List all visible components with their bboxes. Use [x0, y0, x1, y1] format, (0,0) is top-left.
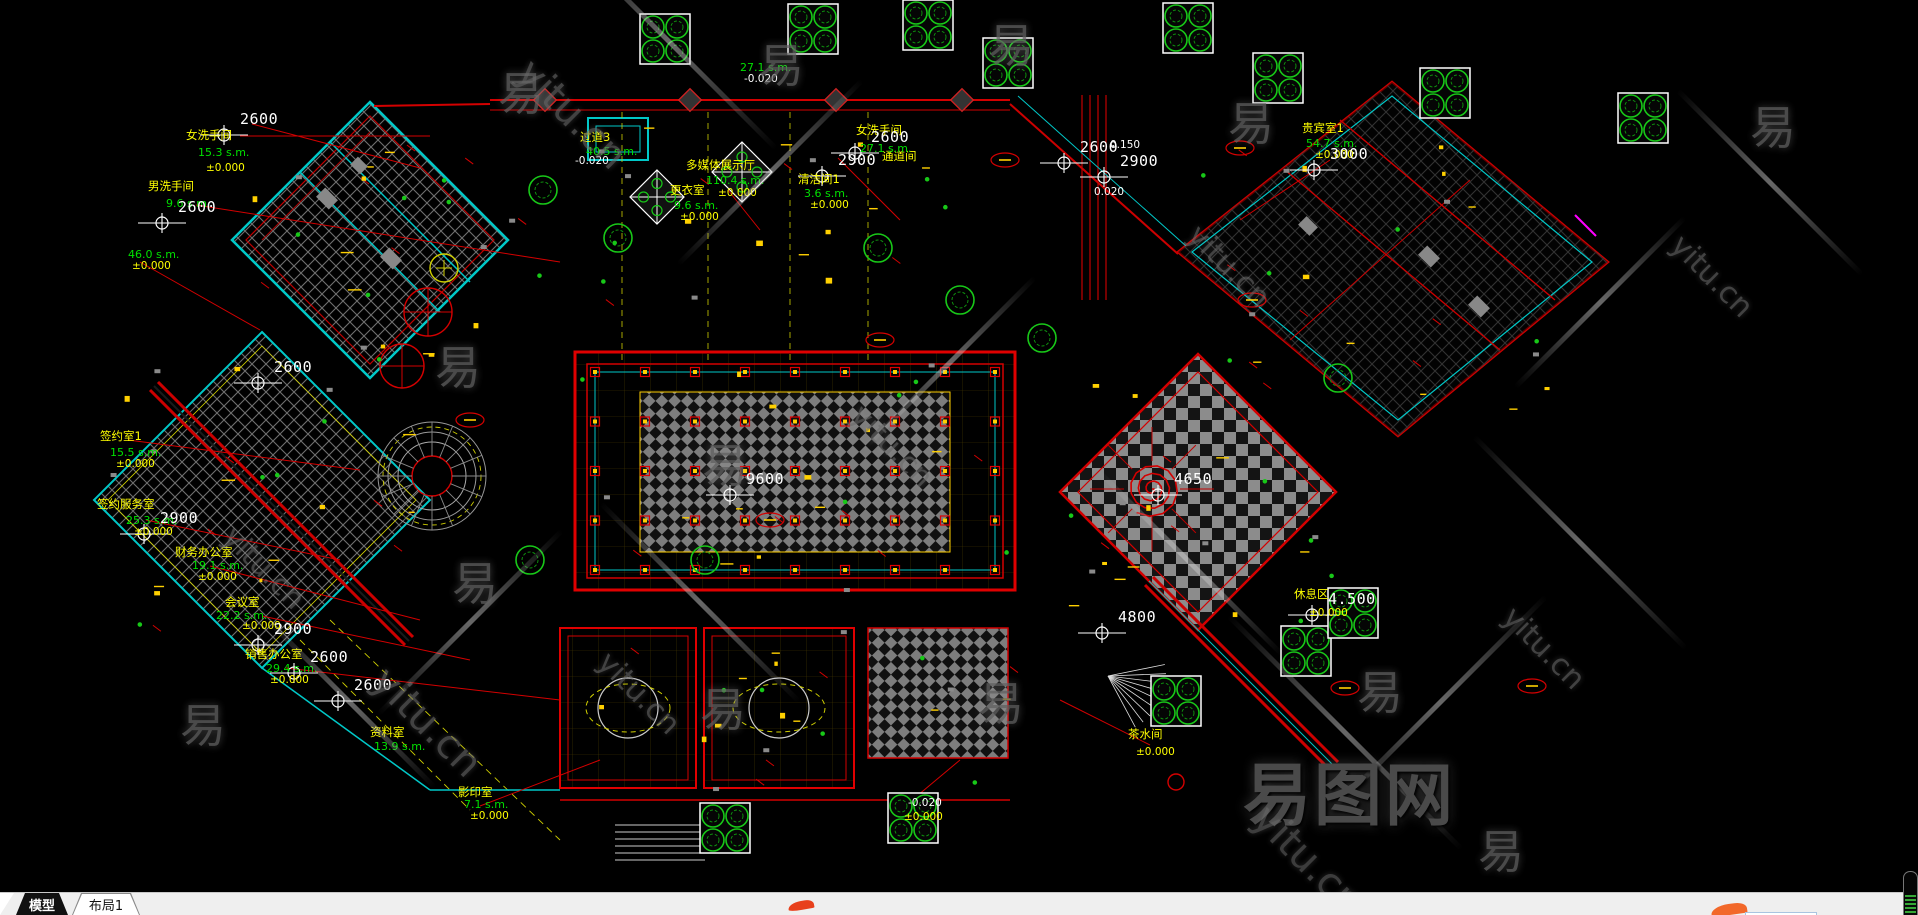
page-scrollbar[interactable]: [1903, 871, 1918, 915]
tab-model[interactable]: 模型: [16, 893, 68, 915]
tab-layout1[interactable]: 布局1: [72, 893, 140, 915]
dimension-marks-svg: [0, 0, 1918, 893]
app-window: 女洗手间男洗手间签约室1签约服务室财务办公室会议室销售办公室资料室影印室多媒体展…: [0, 0, 1918, 915]
tab-bar-corner: [0, 893, 14, 915]
layout-tab-bar: 模型 布局1: [0, 892, 1918, 915]
tab-layout1-label: 布局1: [73, 894, 139, 915]
cad-drawing-canvas[interactable]: 女洗手间男洗手间签约室1签约服务室财务办公室会议室销售办公室资料室影印室多媒体展…: [0, 0, 1918, 893]
scrollbar-stripes: [1905, 895, 1916, 915]
